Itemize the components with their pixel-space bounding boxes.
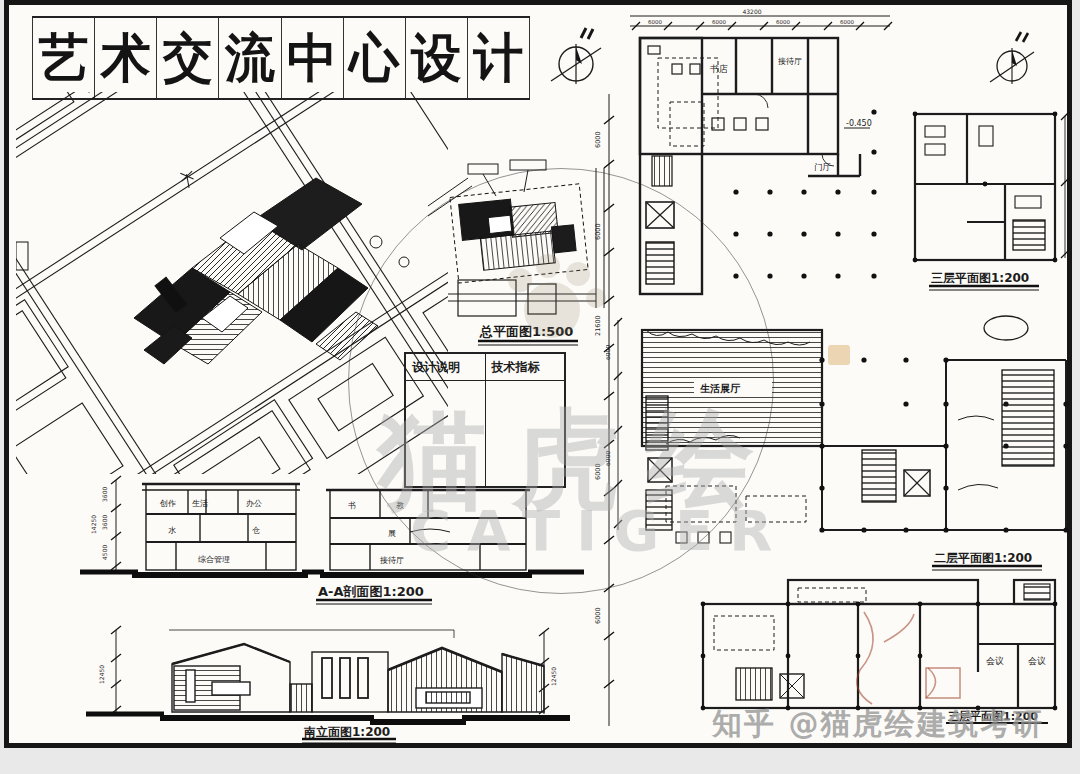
third-floor-plan: 三层平面图1:200: [893, 92, 1077, 298]
plan-room-label: 会议: [1028, 656, 1046, 666]
plan-room-label: 门厅: [814, 162, 832, 172]
plan-room-label: 生活展厅: [699, 383, 741, 394]
section-room-label: 综合管理: [198, 555, 230, 564]
dim-label: 6000: [594, 607, 602, 624]
title-char: 设: [411, 32, 461, 85]
plan-room-label: 会议: [986, 656, 1004, 666]
section-room-label: 展: [388, 529, 396, 538]
bottom-floor-plan: 会议 会议 三层平面图1:200: [688, 572, 1080, 724]
dim-label: 6000: [606, 345, 611, 360]
title-char: 交: [163, 32, 213, 85]
section-room-label: 办公: [246, 499, 262, 508]
title-char: 艺: [39, 32, 89, 85]
north-arrow-icon: [543, 26, 609, 92]
dim-label: 6000: [594, 131, 602, 148]
third-floor-label: 三层平面图1:200: [931, 271, 1029, 285]
title-char: 心: [349, 32, 399, 85]
axonometric-drawing: [16, 92, 448, 474]
dim-label: 12450: [550, 667, 557, 686]
dim-label: 6000: [776, 19, 790, 25]
dim-label: 6000: [594, 223, 602, 240]
plan-level-label: -0.450: [846, 119, 872, 128]
dim-label: 6000: [594, 463, 602, 480]
section-label: A-A剖面图1:200: [318, 584, 424, 599]
second-floor-plan: 6000 6000 生活展厅: [606, 300, 1080, 590]
dim-label: 6000: [648, 19, 662, 25]
dim-label: 3600: [101, 515, 108, 530]
title-char: 中: [287, 32, 337, 85]
first-floor-plan: 43200 6000 6000 6000 6000: [612, 6, 902, 306]
second-floor-label: 二层平面图1:200: [934, 551, 1032, 565]
dim-label: 12450: [98, 665, 105, 684]
north-arrow-icon: [982, 30, 1042, 92]
title-block: 艺 术 交 流 中 心 设 计: [32, 16, 530, 100]
elevation-label: 南立面图1:200: [303, 725, 390, 739]
title-char: 术: [101, 32, 151, 85]
notes-col-tech: 技术指标: [485, 354, 565, 380]
dim-label: 21600: [594, 315, 602, 336]
section-room-label: 创作: [159, 499, 176, 508]
section-drawing: 3600 3600 4500 14250 创作 生活 办公 水 仓 综合管理: [80, 448, 584, 606]
notes-col-design: 设计说明: [406, 354, 485, 380]
plan-room-label: 接待厅: [778, 57, 802, 66]
dim-label: 6000: [840, 19, 854, 25]
dim-label: 6000: [712, 19, 726, 25]
site-plan-label: 总平面图1:500: [479, 324, 573, 339]
bottom-floor-label: 三层平面图1:200: [948, 710, 1038, 723]
dim-label: 14250: [90, 515, 97, 534]
section-room-label: 生活: [192, 499, 208, 508]
section-room-label: 教: [396, 501, 404, 510]
elevation-drawing: 12450 12450: [74, 608, 580, 744]
title-char: 流: [225, 32, 275, 85]
section-room-label: 仓: [252, 526, 260, 535]
dim-label: 4500: [101, 545, 108, 560]
dim-label: 3600: [101, 487, 108, 502]
section-room-label: 书: [348, 501, 356, 510]
dim-label: 43200: [742, 8, 761, 15]
title-char: 计: [473, 32, 523, 85]
plan-room-label: 书店: [709, 64, 728, 74]
dim-label: 6000: [606, 451, 611, 466]
section-room-label: 水: [168, 526, 176, 535]
presentation-board: 艺 术 交 流 中 心 设 计: [0, 0, 1080, 774]
section-room-label: 接待厅: [380, 556, 404, 565]
